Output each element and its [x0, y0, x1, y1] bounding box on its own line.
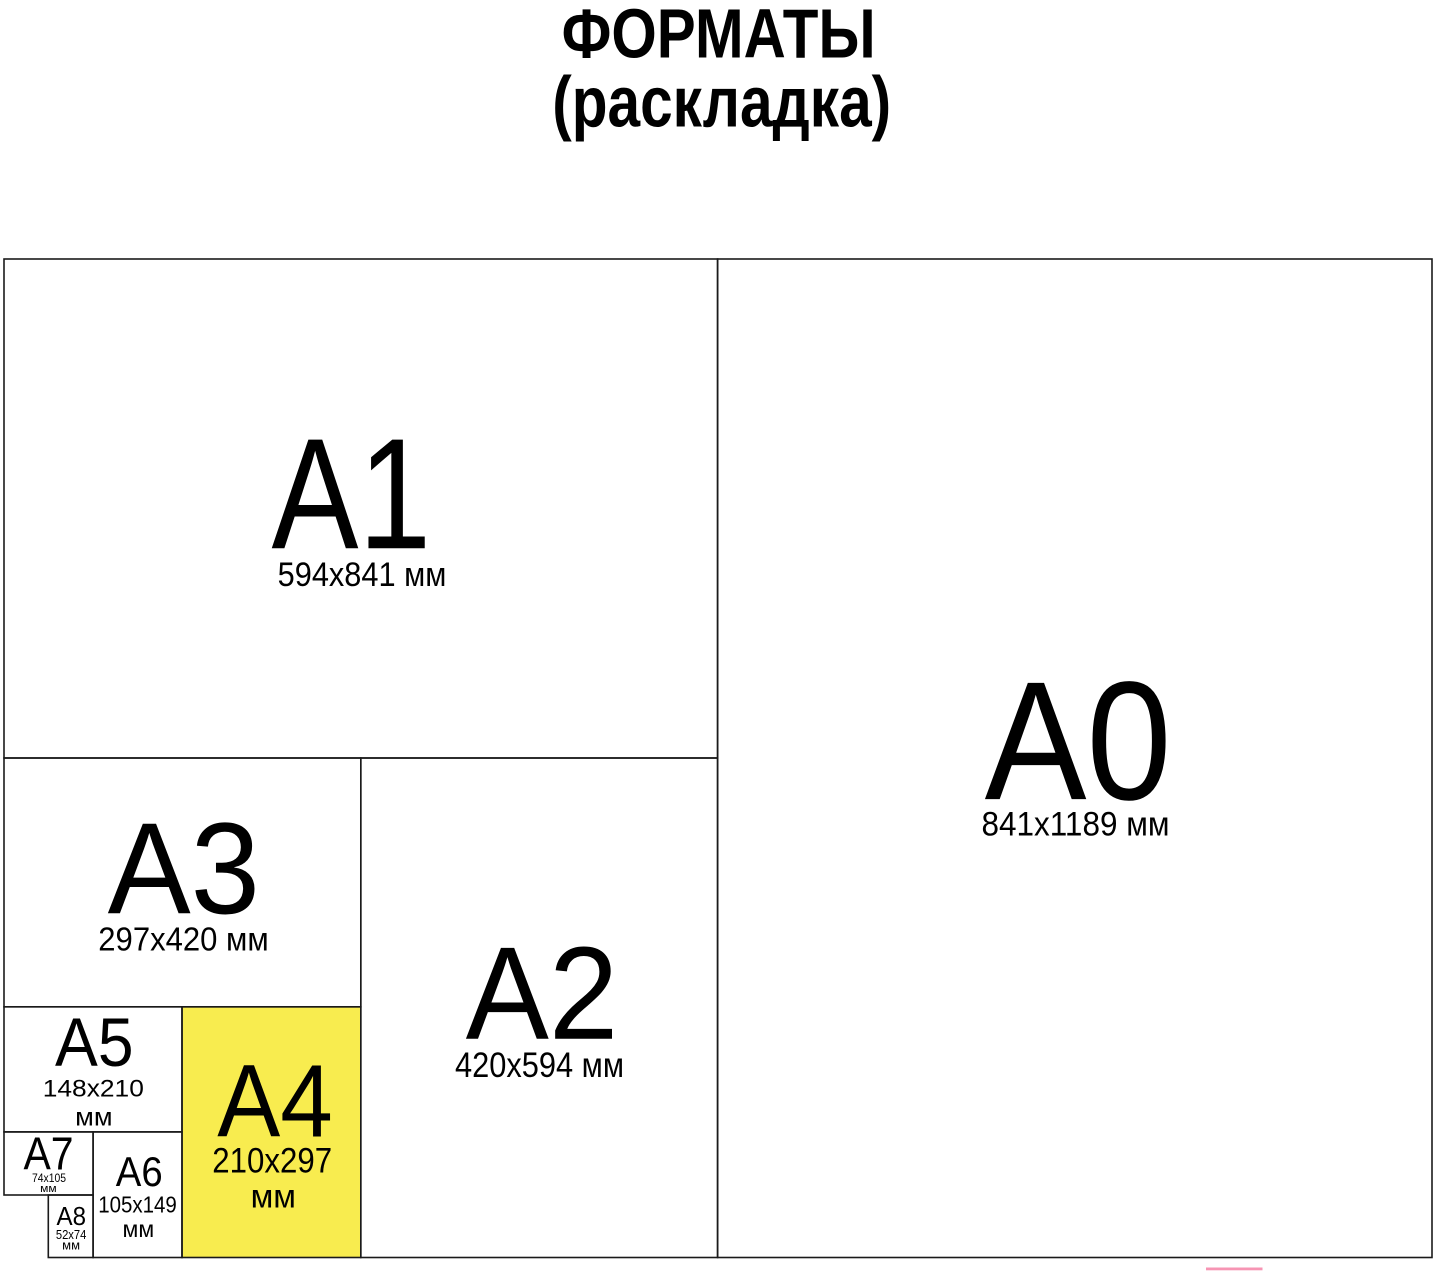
svg-text:297x420 мм: 297x420 мм	[98, 921, 268, 958]
svg-text:A6: A6	[116, 1148, 163, 1195]
svg-text:A3: A3	[108, 795, 260, 941]
svg-text:мм: мм	[251, 1177, 296, 1214]
svg-text:(раскладка): (раскладка)	[552, 64, 891, 143]
svg-text:A5: A5	[55, 1004, 134, 1081]
svg-text:841x1189 мм: 841x1189 мм	[982, 805, 1170, 843]
svg-text:420x594 мм: 420x594 мм	[455, 1045, 624, 1085]
svg-text:мм: мм	[75, 1104, 112, 1132]
svg-text:148x210: 148x210	[43, 1076, 144, 1103]
svg-text:мм: мм	[123, 1216, 155, 1242]
svg-text:210x297: 210x297	[212, 1141, 332, 1180]
svg-text:ФОРМАТЫ: ФОРМАТЫ	[562, 0, 876, 73]
svg-text:A8: A8	[57, 1201, 87, 1231]
svg-text:594x841 мм: 594x841 мм	[278, 556, 447, 594]
svg-text:105x149: 105x149	[98, 1192, 177, 1218]
svg-text:мм: мм	[62, 1238, 80, 1253]
svg-text:мм: мм	[40, 1183, 57, 1195]
